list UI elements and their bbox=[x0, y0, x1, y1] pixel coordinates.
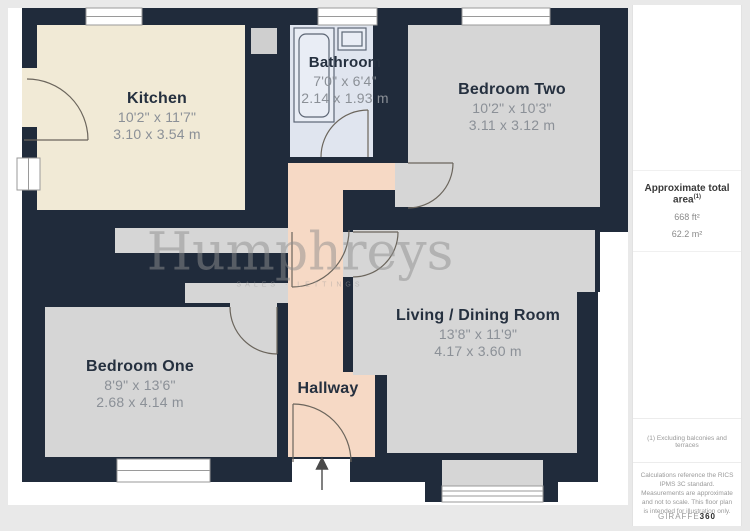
outside-cutout-1 bbox=[600, 232, 628, 292]
bedroom-two-floor bbox=[408, 25, 600, 207]
bedroom-two-doorway bbox=[395, 163, 408, 207]
bedroom-one-floor bbox=[45, 307, 277, 457]
living-dining-floor bbox=[353, 230, 595, 453]
outside-cutout-2 bbox=[598, 292, 628, 482]
window-bathroom-top bbox=[318, 8, 377, 25]
brand-bold: 360 bbox=[700, 512, 716, 521]
info-sidebar: Approximate total area(1) 668 ft² 62.2 m… bbox=[632, 5, 742, 526]
bedroom-one-doorway bbox=[230, 288, 277, 307]
window-kitchen-left bbox=[17, 158, 40, 190]
total-area-footnote-ref: (1) bbox=[694, 194, 701, 200]
giraffe360-logo: GIRAFFE360 bbox=[633, 512, 741, 521]
window-kitchen-top bbox=[86, 8, 142, 25]
total-area-title: Approximate total area(1) bbox=[637, 183, 737, 205]
duct-block bbox=[251, 28, 277, 54]
disclaimer-text: Calculations reference the RICS IPMS 3C … bbox=[633, 462, 741, 516]
window-bedroom-two-top bbox=[462, 8, 550, 25]
window-bedroom-one-bottom bbox=[117, 459, 210, 482]
total-area-ft: 668 ft² bbox=[637, 212, 737, 222]
bathtub bbox=[294, 28, 334, 122]
entry-steps bbox=[425, 460, 558, 502]
total-area-title-text: Approximate total area bbox=[644, 183, 729, 205]
total-area-box: Approximate total area(1) 668 ft² 62.2 m… bbox=[633, 170, 741, 252]
kitchen-floor bbox=[37, 25, 245, 210]
brand-light: GIRAFFE bbox=[658, 512, 700, 521]
kitchen-door-recess bbox=[22, 68, 37, 127]
footnote-exclusions: (1) Excluding balconies and terraces bbox=[633, 418, 741, 465]
sink bbox=[338, 28, 366, 50]
total-area-m: 62.2 m² bbox=[637, 229, 737, 239]
floor-plan-image: Kitchen 10'2" x 11'7" 3.10 x 3.54 m Bath… bbox=[0, 0, 750, 531]
corridor-cupboard-upper bbox=[115, 228, 288, 253]
